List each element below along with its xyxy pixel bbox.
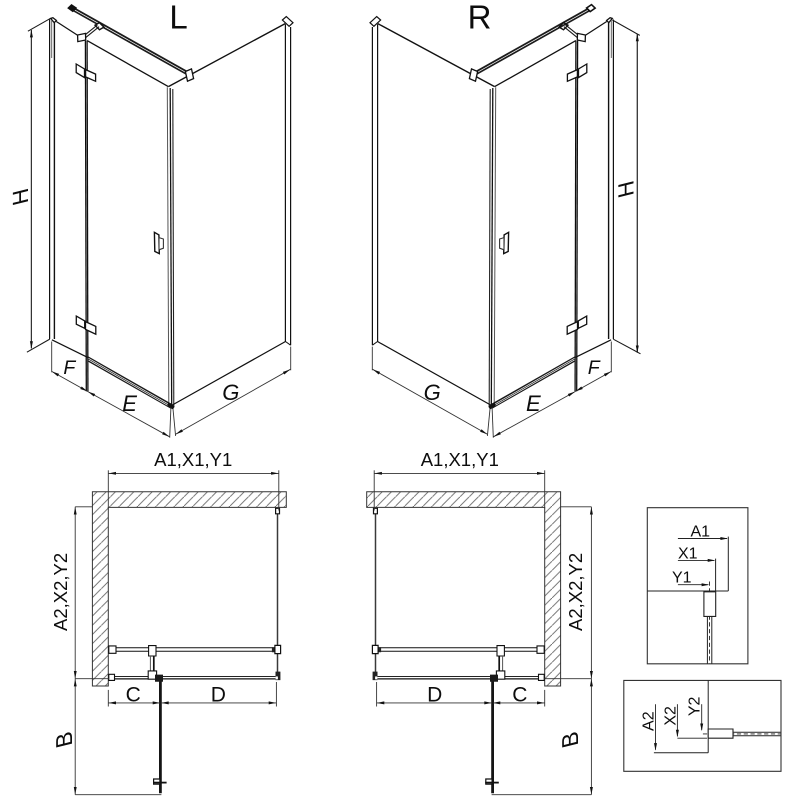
svg-text:D: D [211, 684, 226, 707]
svg-text:R: R [468, 0, 492, 35]
svg-text:A2,X2,Y2: A2,X2,Y2 [50, 553, 71, 631]
svg-text:G: G [424, 380, 441, 405]
svg-text:X1: X1 [678, 545, 698, 562]
svg-text:X2: X2 [662, 706, 679, 726]
svg-text:E: E [526, 391, 541, 416]
svg-text:D: D [427, 684, 442, 707]
svg-text:A1,X1,Y1: A1,X1,Y1 [421, 449, 499, 470]
svg-text:C: C [126, 684, 141, 707]
svg-text:Y2: Y2 [687, 697, 704, 717]
svg-text:G: G [222, 380, 239, 405]
svg-text:C: C [512, 684, 527, 707]
svg-text:A2,X2,Y2: A2,X2,Y2 [565, 553, 586, 631]
svg-text:A2: A2 [640, 711, 657, 731]
svg-text:F: F [63, 357, 76, 379]
svg-text:L: L [169, 0, 187, 35]
svg-text:E: E [122, 391, 137, 416]
svg-text:F: F [588, 357, 601, 379]
svg-text:Y1: Y1 [672, 570, 692, 587]
svg-text:A1,X1,Y1: A1,X1,Y1 [154, 449, 232, 470]
svg-text:A1: A1 [691, 523, 711, 540]
